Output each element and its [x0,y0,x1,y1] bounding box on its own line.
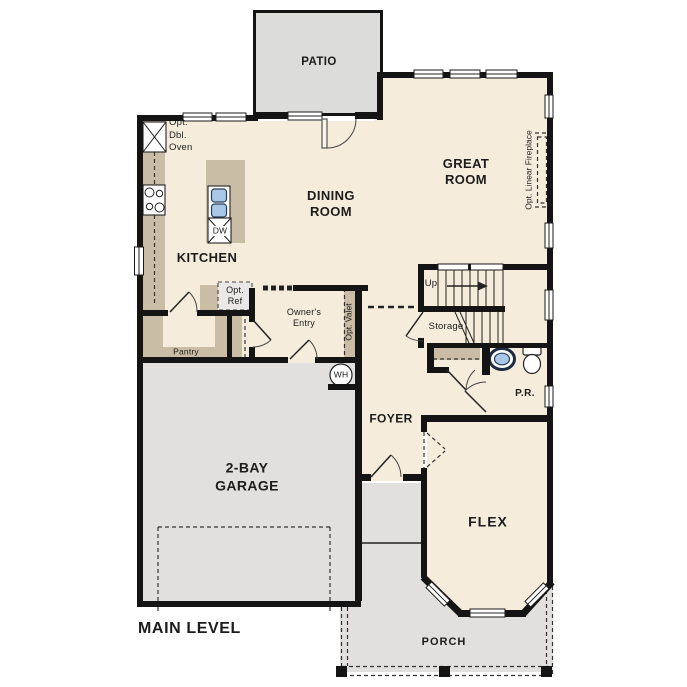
hall-cabinet [231,312,242,357]
porch-label: PORCH [422,636,467,650]
window [470,609,505,617]
window [135,247,144,275]
toilet [523,347,541,374]
stair-railing [438,264,503,270]
owners-entry-label: Owner's Entry [277,307,331,330]
pantry-label: Pantry [173,347,199,358]
kitchen-label: KITCHEN [177,250,238,266]
cooktop [143,185,165,215]
up-label: Up [425,278,438,290]
opt-ref-label: Opt. Ref [222,285,248,308]
window [545,290,553,320]
dining-room-label: DINING ROOM [295,188,367,221]
window [545,95,553,118]
opt-linear-fireplace-label: Opt. Linear Fireplace [524,130,535,209]
dishwasher-label: DW [213,226,228,237]
patio-label: PATIO [301,55,336,69]
plan-title: MAIN LEVEL [138,620,241,638]
opt-dbl-oven-label: Opt. Dbl. Oven [169,117,203,155]
window [216,113,246,121]
pantry-shelf-right [215,316,227,357]
water-heater-label: WH [334,370,349,381]
great-room-label: GREAT ROOM [430,156,502,189]
powder-room-sink [490,349,515,370]
window [545,386,553,407]
window [450,70,480,78]
opt-valet-label: Opt. Valet [344,303,355,340]
window [486,70,517,78]
ref-cabinet [200,285,218,310]
double-oven [143,122,166,152]
floor-plan: PATIO GREAT ROOM DINING ROOM KITCHEN 2-B… [0,0,687,687]
porch-column [541,666,552,677]
window [545,223,553,248]
understair-shelf [433,348,480,360]
island-sink [208,186,230,218]
garage-label: 2-BAY GARAGE [207,460,287,495]
floor-plan-drawing [0,0,687,687]
storage-label: Storage [429,321,464,333]
porch-column [439,666,450,677]
porch-column [336,666,347,677]
powder-room-label: P.R. [515,388,535,401]
flex-label: FLEX [468,513,508,531]
window [414,70,443,78]
patio-door-threshold [288,112,322,120]
foyer-label: FOYER [369,412,412,427]
